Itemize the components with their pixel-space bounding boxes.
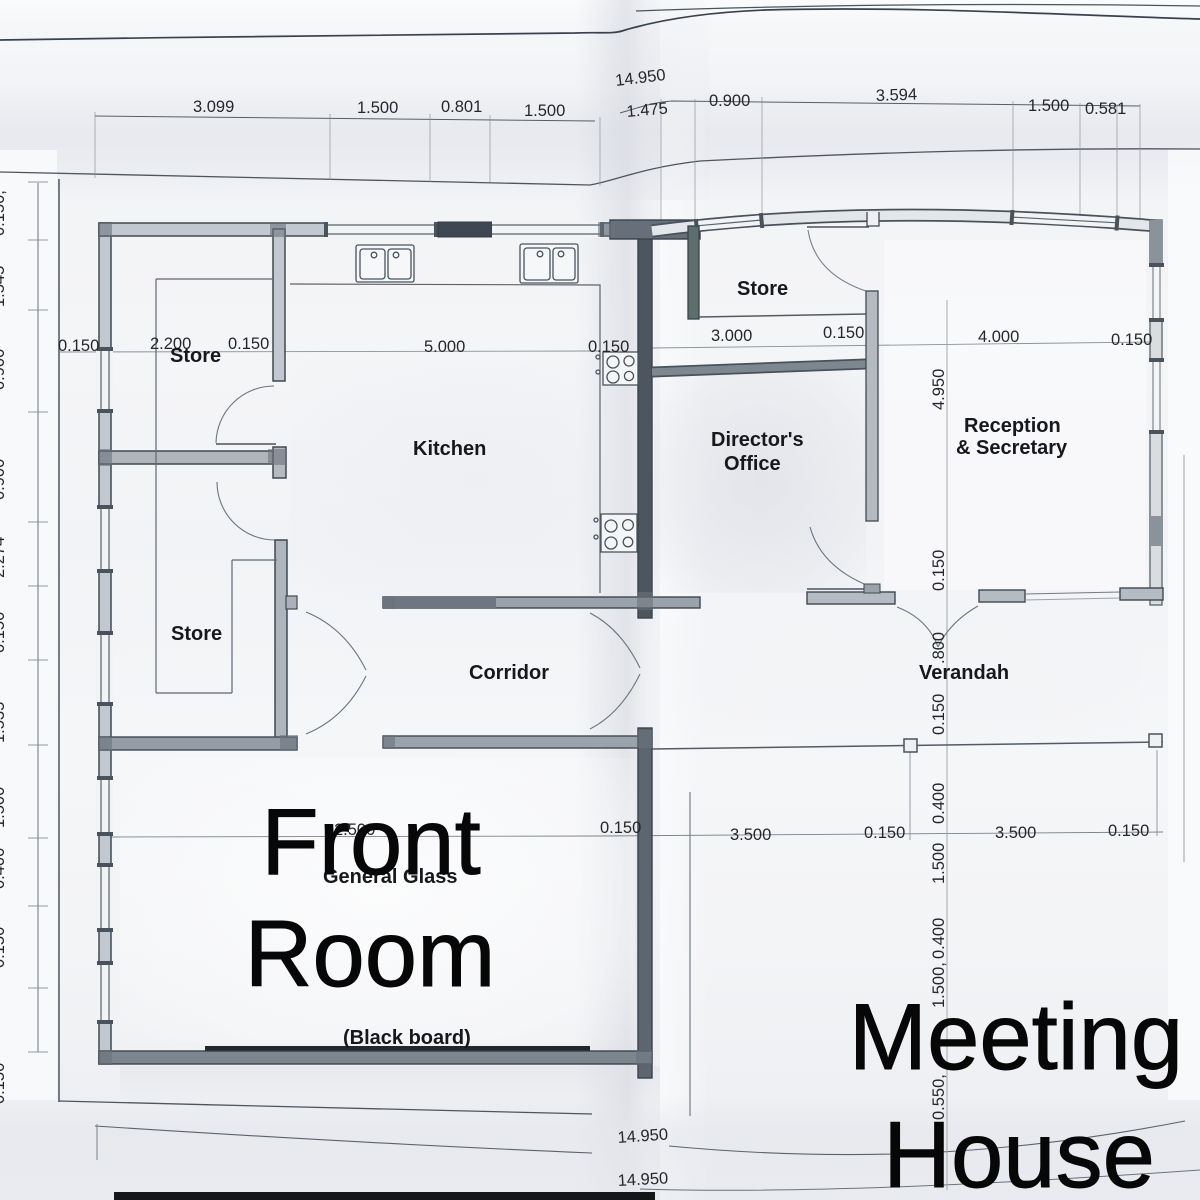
svg-text:Meeting: Meeting — [849, 984, 1183, 1089]
svg-text:0.150: 0.150 — [58, 337, 99, 355]
svg-text:5.000: 5.000 — [424, 338, 465, 356]
svg-text:1.500: 1.500 — [0, 787, 8, 828]
svg-text:14.950: 14.950 — [617, 1126, 669, 1147]
svg-text:1.500: 1.500 — [524, 102, 565, 120]
svg-text:Office: Office — [724, 453, 781, 475]
svg-text:1.475: 1.475 — [626, 99, 669, 121]
svg-text:0.801: 0.801 — [441, 98, 482, 116]
svg-text:0.400: 0.400 — [930, 783, 948, 824]
svg-text:4.000: 4.000 — [978, 328, 1019, 346]
svg-text:0.150: 0.150 — [588, 338, 629, 356]
svg-text:0.150: 0.150 — [823, 324, 864, 342]
svg-text:Reception: Reception — [964, 415, 1061, 437]
svg-text:Store: Store — [737, 278, 788, 300]
svg-text:0.400: 0.400 — [0, 848, 8, 889]
svg-text:0.150: 0.150 — [1111, 331, 1152, 349]
svg-text:& Secretary: & Secretary — [956, 437, 1068, 459]
svg-text:3.594: 3.594 — [876, 86, 918, 105]
svg-text:(Black board): (Black board) — [343, 1027, 471, 1049]
svg-text:0.581: 0.581 — [1085, 100, 1126, 118]
svg-text:3.000: 3.000 — [711, 327, 752, 345]
svg-text:0.150: 0.150 — [228, 335, 269, 353]
svg-text:Front: Front — [261, 789, 480, 894]
svg-text:1.500: 1.500 — [357, 99, 398, 117]
svg-text:0.150: 0.150 — [600, 819, 641, 837]
svg-text:1.500: 1.500 — [1028, 97, 1069, 115]
svg-text:1.500: 1.500 — [930, 843, 948, 884]
svg-text:14.950: 14.950 — [614, 66, 666, 90]
svg-text:3.099: 3.099 — [193, 98, 234, 116]
svg-text:Director's: Director's — [711, 429, 804, 451]
svg-text:0.150: 0.150 — [930, 550, 948, 591]
svg-text:.800: .800 — [930, 632, 948, 664]
svg-text:4.950: 4.950 — [930, 369, 948, 410]
svg-text:Corridor: Corridor — [469, 662, 549, 684]
svg-text:0.150: 0.150 — [1108, 822, 1149, 840]
svg-text:2.274: 2.274 — [0, 537, 8, 578]
svg-text:1.535: 1.535 — [0, 702, 8, 743]
svg-text:Kitchen: Kitchen — [413, 438, 486, 460]
svg-text:1.545: 1.545 — [0, 266, 8, 307]
svg-text:0.150: 0.150 — [0, 1063, 8, 1104]
svg-text:0.150: 0.150 — [930, 694, 948, 735]
svg-text:0.150: 0.150 — [0, 927, 8, 968]
svg-text:0.150: 0.150 — [864, 824, 905, 842]
svg-text:Store: Store — [170, 345, 221, 367]
svg-text:Room: Room — [245, 901, 496, 1006]
svg-text:0.150: 0.150 — [0, 612, 8, 653]
svg-text:0.150,: 0.150, — [0, 190, 8, 236]
svg-text:0.900: 0.900 — [709, 92, 750, 110]
svg-text:3.500: 3.500 — [730, 826, 771, 844]
svg-text:3.500: 3.500 — [995, 824, 1036, 842]
svg-text:0.900: 0.900 — [0, 459, 8, 500]
svg-text:0.400: 0.400 — [930, 918, 948, 959]
svg-text:14.950: 14.950 — [617, 1169, 668, 1190]
svg-text:0.900: 0.900 — [0, 349, 8, 390]
svg-text:Store: Store — [171, 623, 222, 645]
svg-text:House: House — [883, 1102, 1155, 1200]
svg-text:Verandah: Verandah — [919, 662, 1009, 684]
